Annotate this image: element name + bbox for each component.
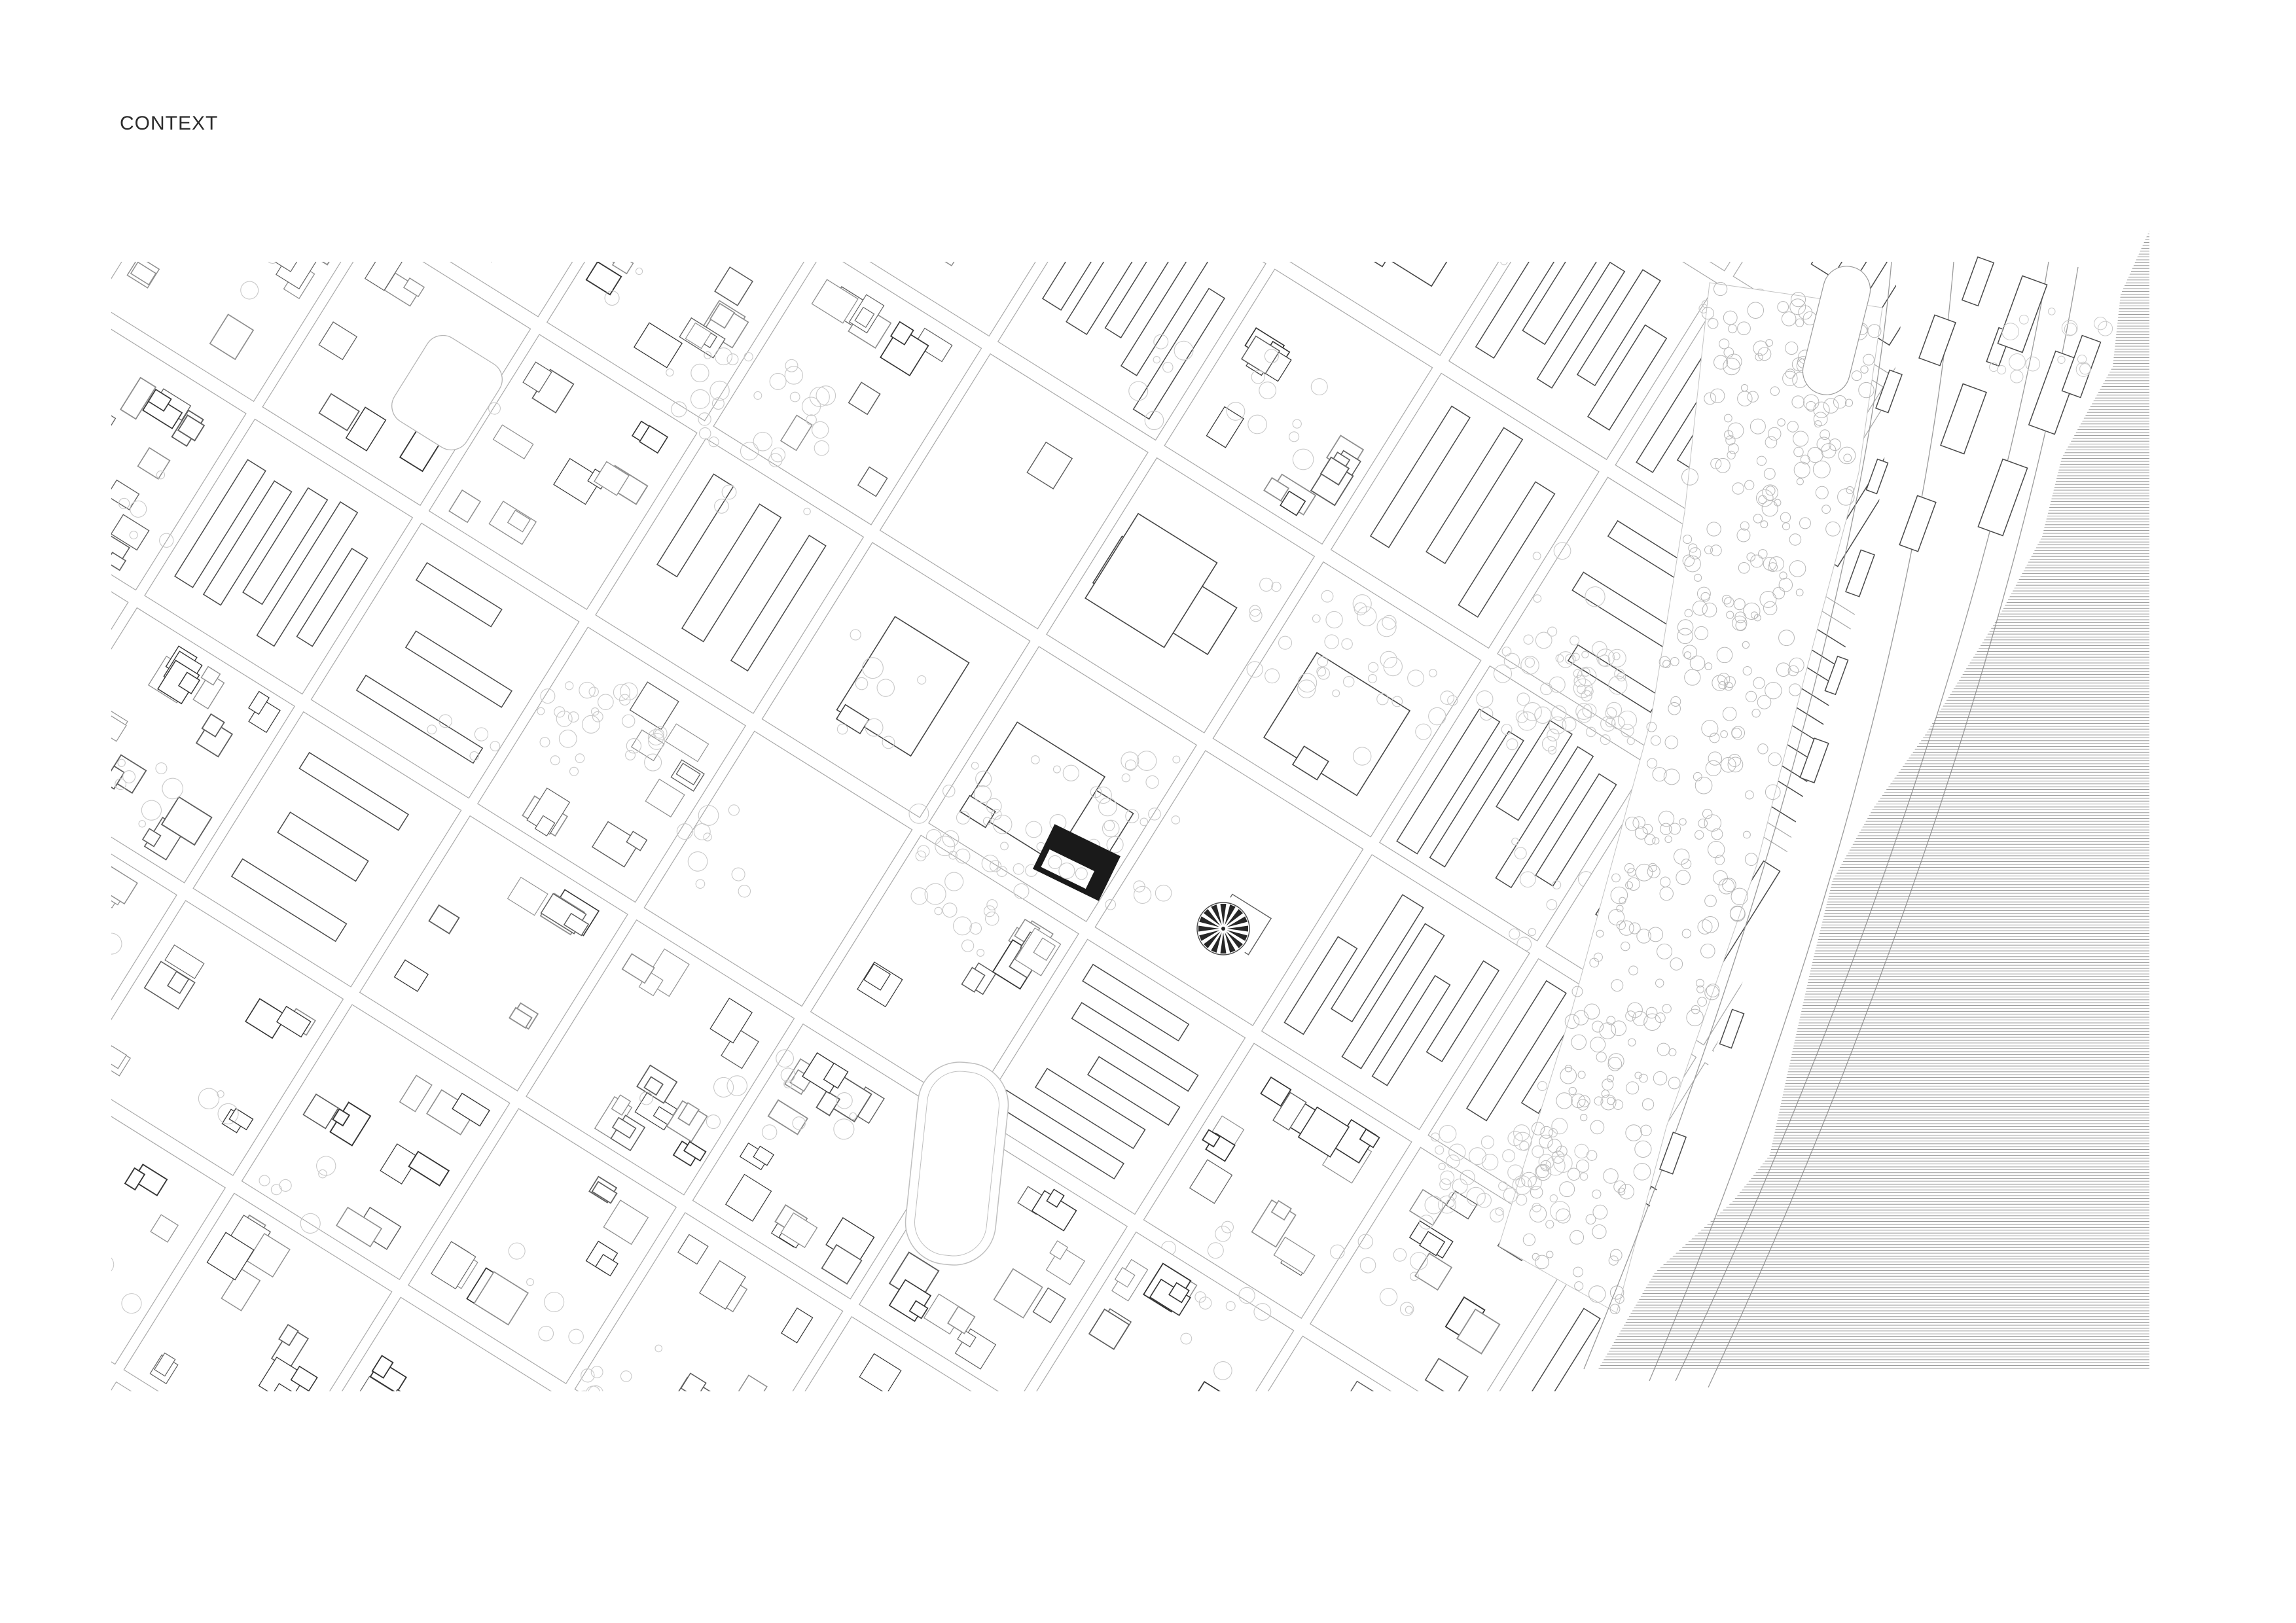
site-plan-svg xyxy=(0,0,2296,1623)
drawing-sheet: CONTEXT xyxy=(0,0,2296,1623)
starburst-plaza xyxy=(1191,897,1255,961)
